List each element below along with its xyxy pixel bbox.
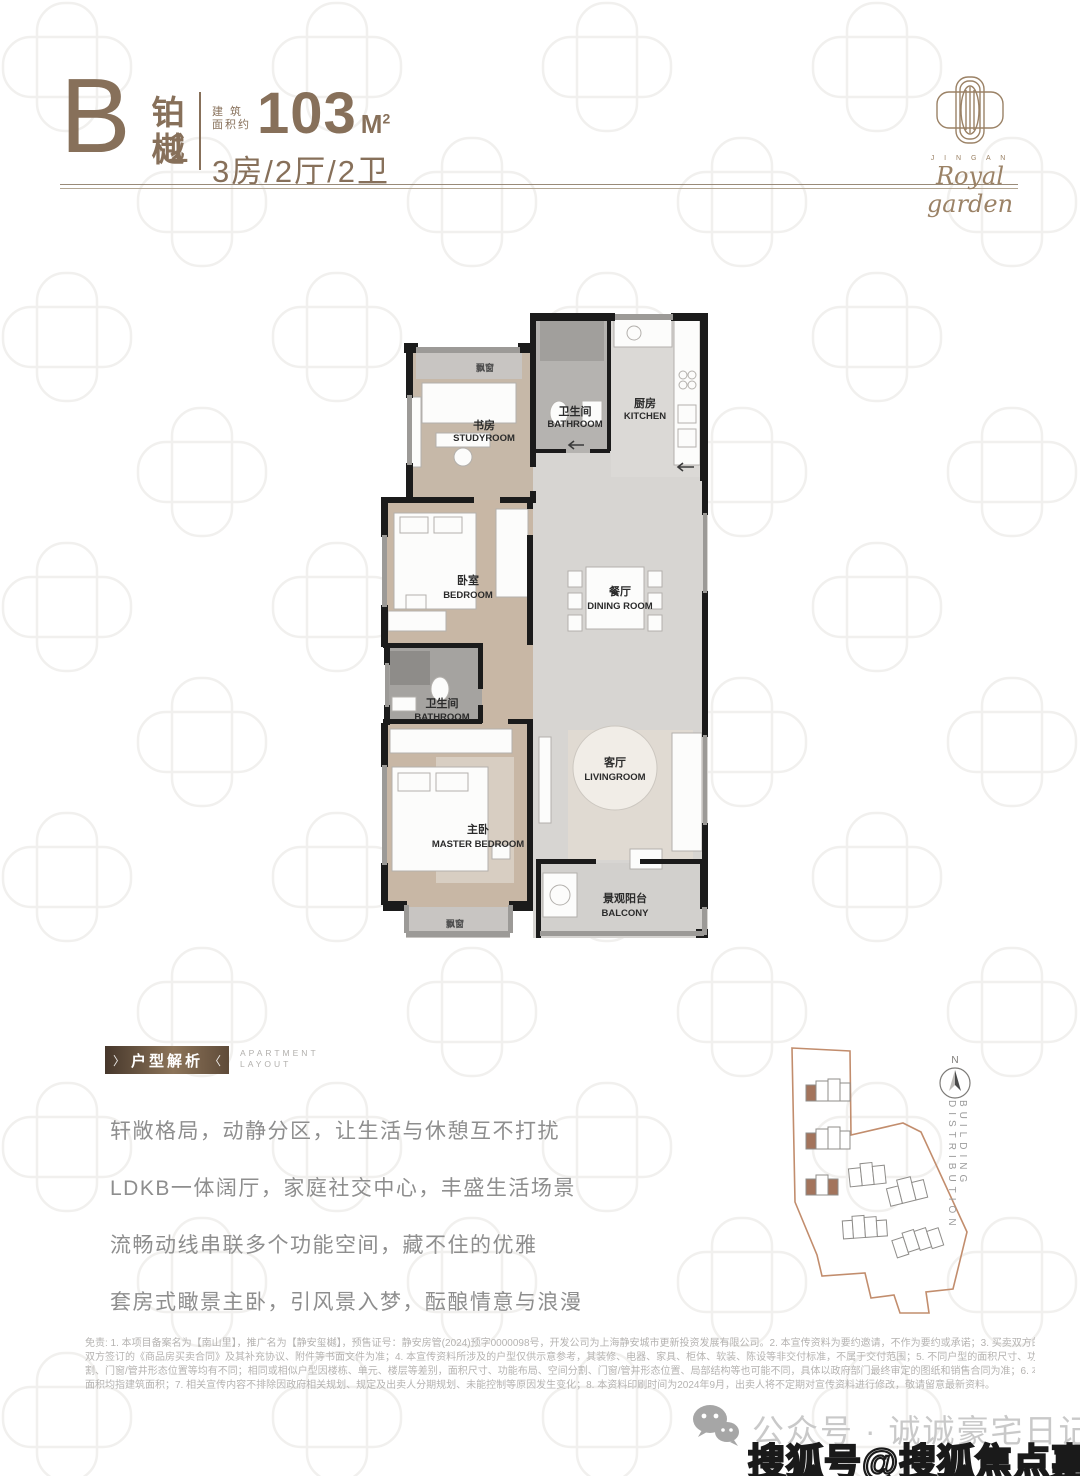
disclaimer-line-2: 双方签订的《商品房买卖合同》及其补充协议、附件等书面文件为准；4. 本宣传资料所… [85,1351,1035,1365]
header-rule [60,184,1018,189]
bedroom-cn-label: 卧室 [457,573,479,587]
analysis-line-3: 流畅动线串联多个功能空间，藏不住的优雅 [110,1217,530,1274]
disclaimer-line-1: 免责: 1. 本项目备案名为【南山里】，推广名为【静安玺樾】，预售证号：静安房管… [85,1337,1035,1351]
compass-north-label: N [951,1055,958,1066]
poster-page: B 1 铂 樾 建 筑 面积约 103 M2 3房/2厅/2卫 [0,0,1080,1476]
logo-subtext: J I N G A N [890,155,1050,162]
unit-type-name: 铂 樾 [148,94,188,168]
bathroom1-en-label: BATHROOM [547,419,602,430]
analysis-line-2: LDKB一体阔厅，家庭社交中心，丰盛生活场景 [110,1160,530,1217]
balcony-en-label: BALCONY [602,908,650,919]
kitchen-en-label: KITCHEN [624,411,666,422]
disclaimer-line-3: 割、门窗/管井形态位置等均有不同；相同或相似户型因楼栋、单元、楼层等差别，面积尺… [85,1365,1035,1379]
analysis-line-4: 套房式瞰景主卧，引风景入梦，酝酿情意与浪漫 [110,1274,530,1331]
bathroom2-cn-label: 卫生间 [426,696,459,710]
building-distribution-caption: BUILDING DISTRIBUTION [946,1100,968,1310]
unit-type-name-char2: 樾 [148,131,188,168]
master-cn-label: 主卧 [467,822,489,836]
kitchen-cn-label: 厨房 [634,396,656,410]
wechat-icon [690,1402,742,1448]
bedroom-en-label: BEDROOM [443,590,493,601]
header-divider [199,92,201,170]
floorplan: 飘窗 书房 STUDYROOM 卫生间 BATHROOM 厨房 KITCHEN … [378,305,712,953]
logo-script: Royal garden [890,162,1050,218]
area-block: 建 筑 面积约 103 M2 3房/2厅/2卫 [212,88,390,191]
sohu-watermark: 搜狐号@搜狐焦点嘉哈关站 [748,1432,1080,1476]
section-subtitle: APARTMENT LAYOUT [240,1048,319,1070]
living-en-label: LIVINGROOM [584,772,645,783]
analysis-paragraphs: 轩敞格局，动静分区，让生活与休憩互不打扰 LDKB一体阔厅，家庭社交中心，丰盛生… [110,1103,530,1331]
disclaimer-line-4: 面积均指建筑面积；7. 相关宣传内容不排除因政府相关规划、规定及出卖人分期规划、… [85,1379,1035,1393]
dining-en-label: DINING ROOM [587,601,653,612]
analysis-line-1: 轩敞格局，动静分区，让生活与休憩互不打扰 [110,1103,530,1160]
badge-chevron-left: 〉 [113,1052,125,1069]
area-unit: M2 [361,109,390,140]
site-buildings [806,1079,944,1260]
unit-type-letter: B [60,66,131,166]
section-badge: 〉 户型解析 〈 [105,1046,229,1074]
bathroom1-cn-label: 卫生间 [559,404,592,418]
dining-cn-label: 餐厅 [608,584,631,598]
area-label: 建 筑 面积约 [212,106,251,132]
compass-icon: N [940,1055,970,1098]
master-en-label: MASTER BEDROOM [432,839,524,850]
bay-window-bottom-label: 飘窗 [446,918,464,929]
section-badge-label: 户型解析 [131,1050,203,1071]
brand-logo: J I N G A N Royal garden [890,74,1050,218]
study-en-label: STUDYROOM [453,433,515,444]
bathroom2-en-label: BATHROOM [414,712,469,723]
badge-chevron-right: 〈 [209,1052,221,1069]
disclaimer: 免责: 1. 本项目备案名为【南山里】，推广名为【静安玺樾】，预售证号：静安房管… [85,1337,1035,1393]
unit-type-name-char1: 铂 [148,94,188,131]
bay-window-top-label: 飘窗 [476,362,494,373]
living-cn-label: 客厅 [603,755,626,769]
logo-ornament-icon [890,74,1050,146]
study-cn-label: 书房 [473,418,495,432]
area-value: 103 [257,88,357,140]
balcony-cn-label: 景观阳台 [602,891,647,905]
